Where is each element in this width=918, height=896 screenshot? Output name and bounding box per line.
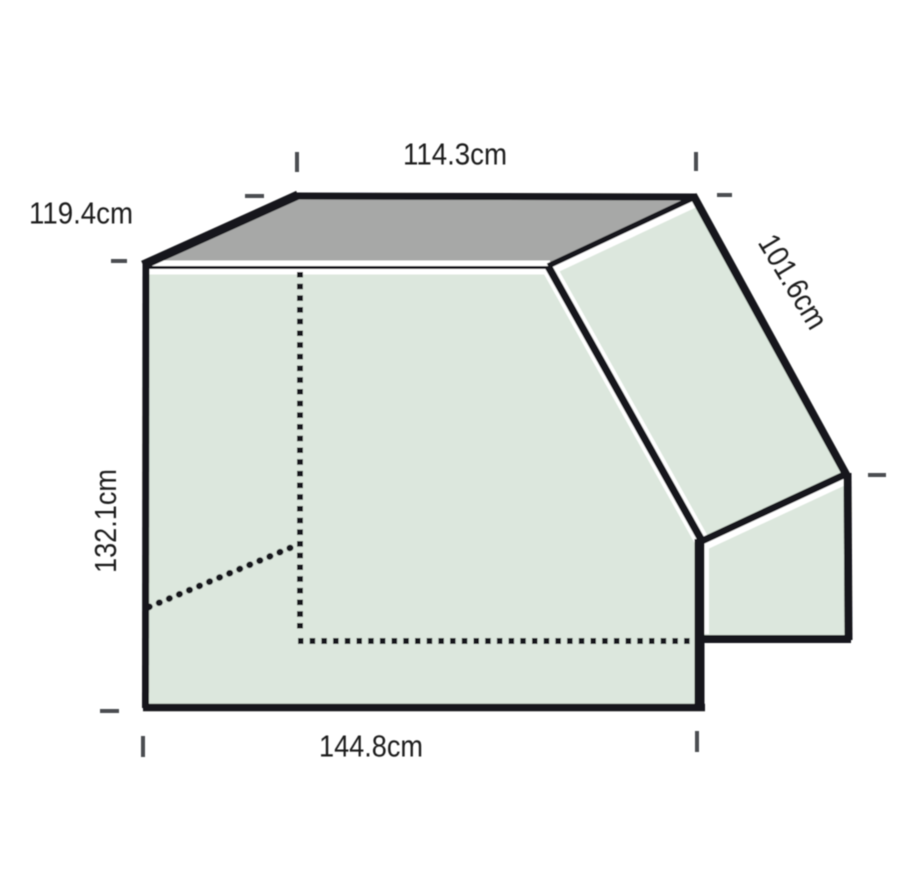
svg-text:144.8cm: 144.8cm	[319, 729, 423, 764]
svg-text:114.3cm: 114.3cm	[403, 137, 507, 172]
svg-text:132.1cm: 132.1cm	[88, 469, 123, 573]
svg-text:119.4cm: 119.4cm	[29, 196, 133, 231]
